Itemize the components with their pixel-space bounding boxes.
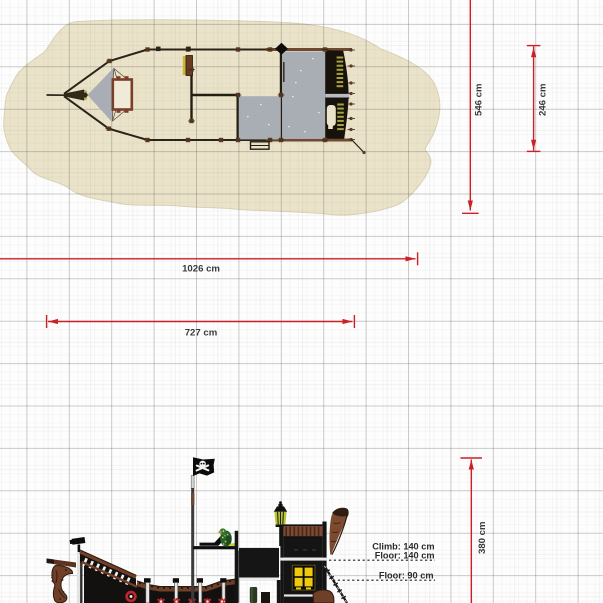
svg-text:727 cm: 727 cm <box>185 328 218 339</box>
svg-text:246 cm: 246 cm <box>537 83 548 116</box>
svg-text:1026 cm: 1026 cm <box>182 263 220 274</box>
svg-text:Floor: 90 cm: Floor: 90 cm <box>379 571 434 581</box>
svg-text:546 cm: 546 cm <box>473 83 484 116</box>
svg-text:Floor: 140 cm: Floor: 140 cm <box>375 550 435 560</box>
svg-text:380 cm: 380 cm <box>477 521 488 554</box>
